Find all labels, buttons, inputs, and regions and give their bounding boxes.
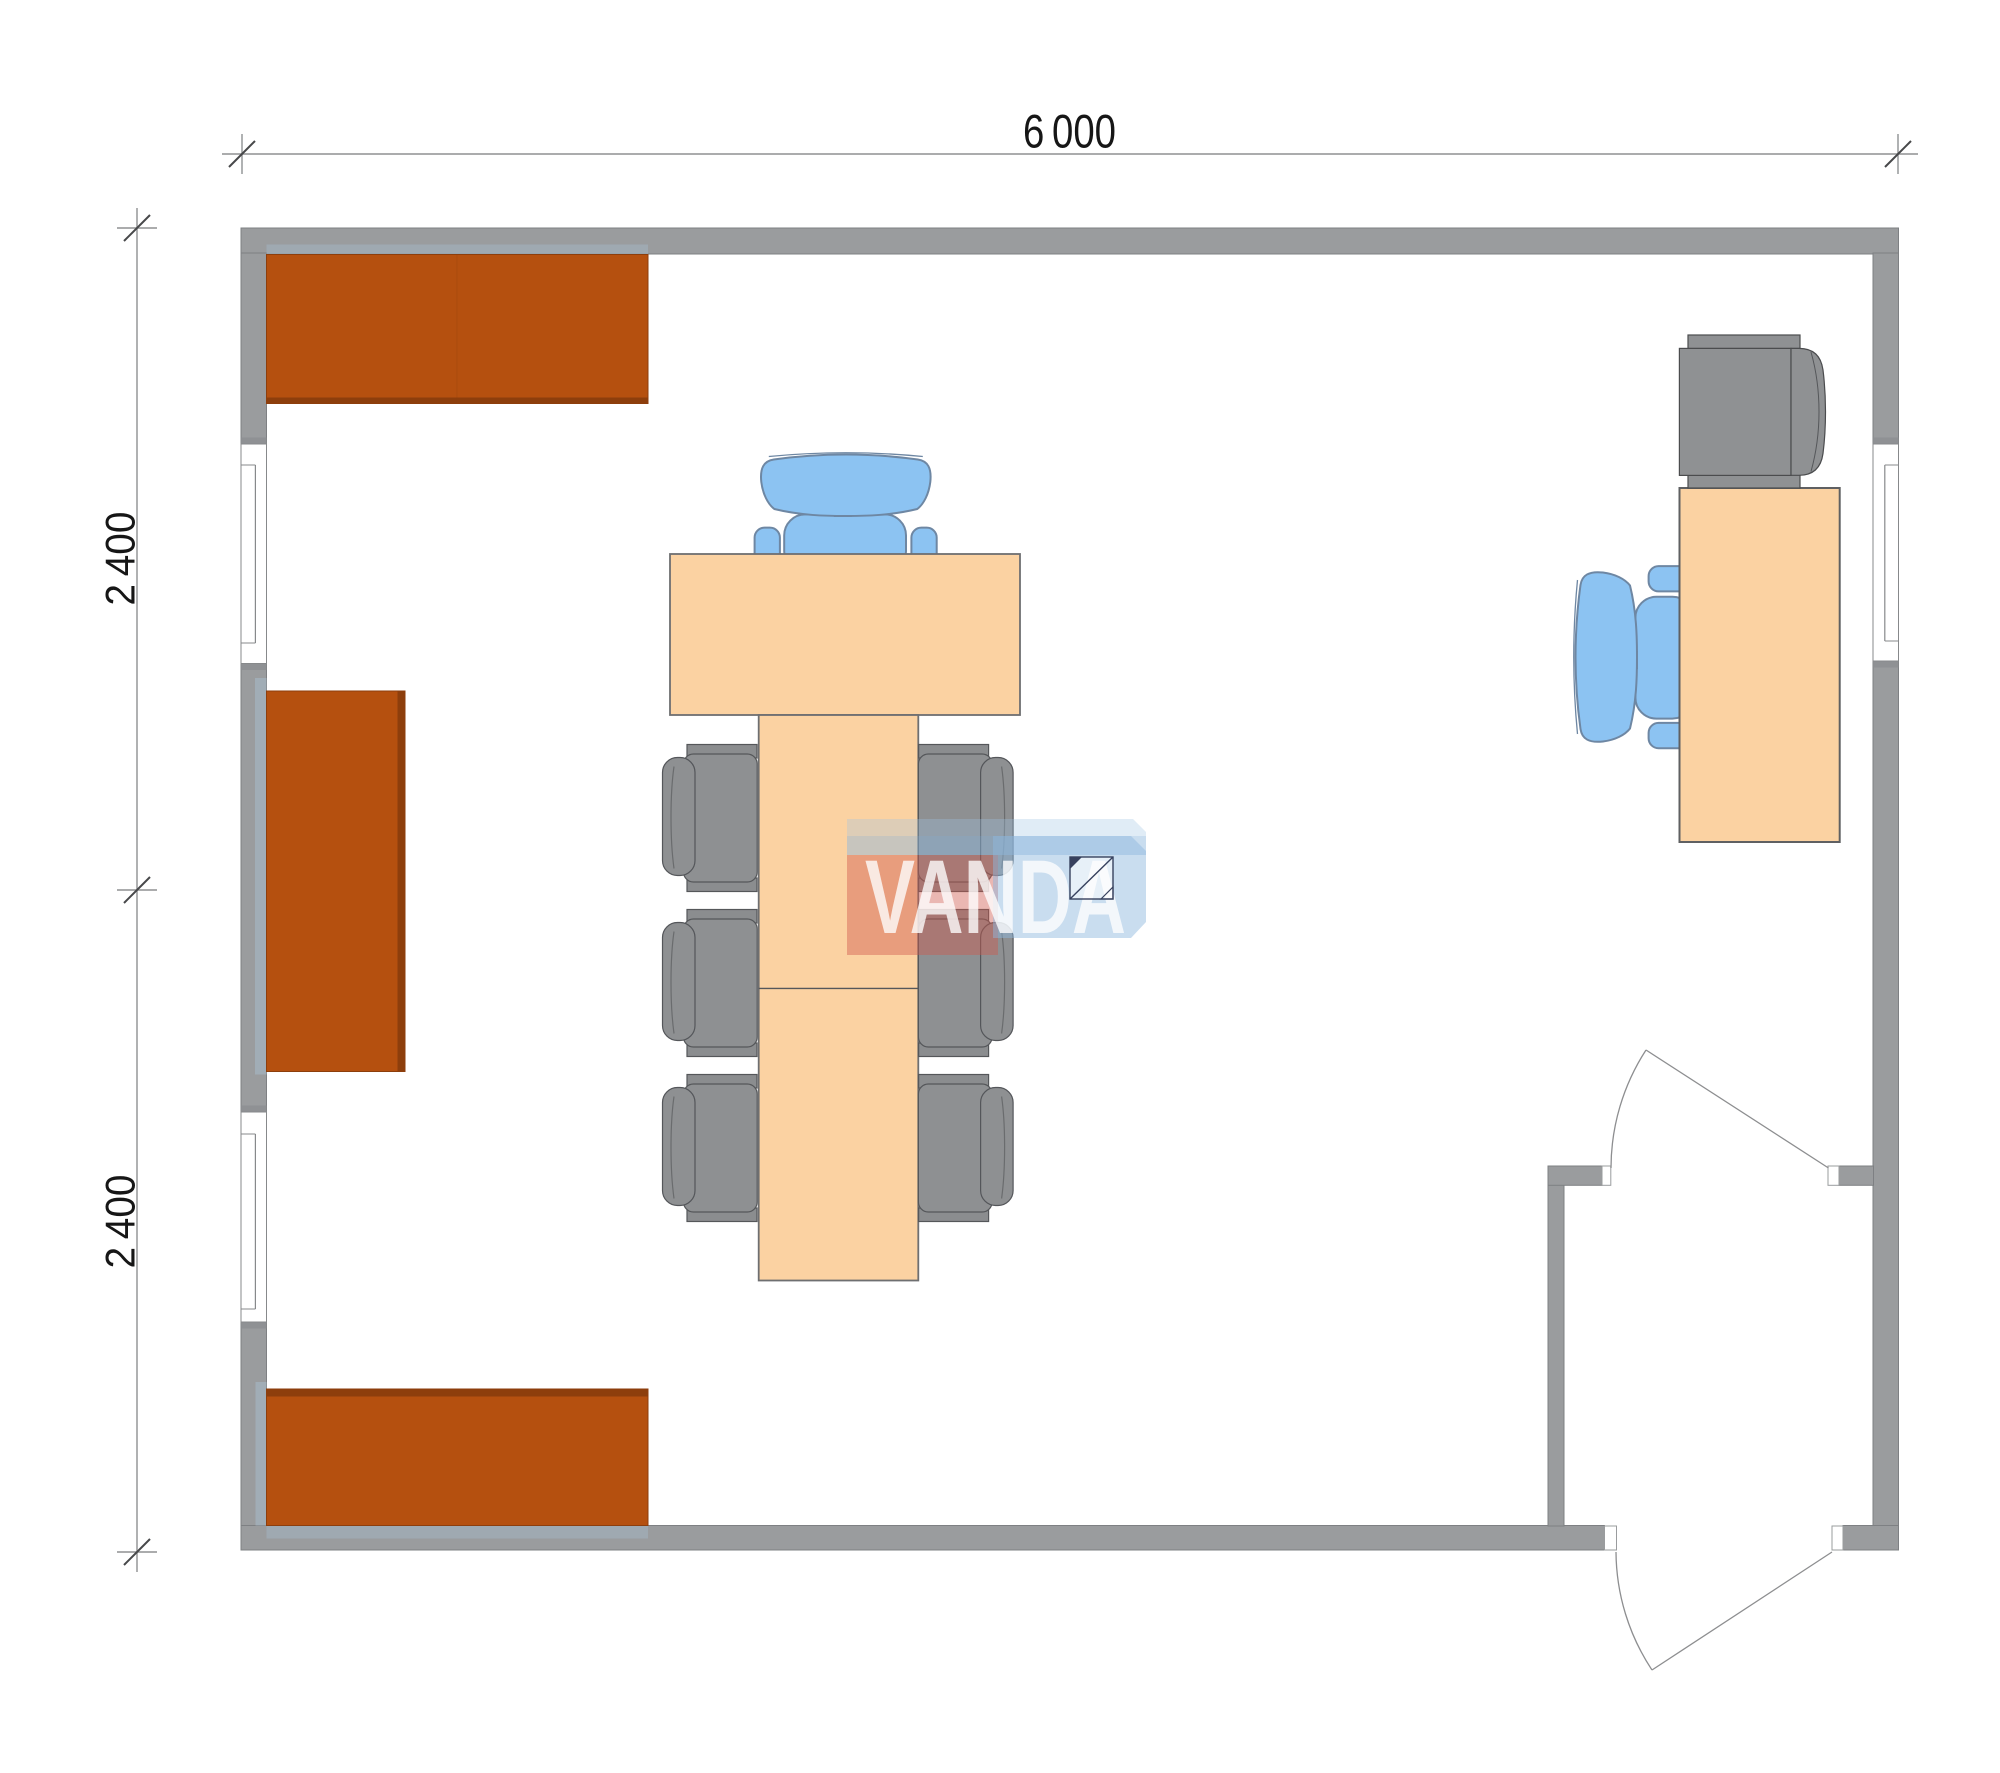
svg-text:6 000: 6 000 bbox=[1023, 105, 1116, 158]
svg-text:2 400: 2 400 bbox=[96, 1175, 143, 1269]
svg-text:2 400: 2 400 bbox=[96, 512, 143, 606]
